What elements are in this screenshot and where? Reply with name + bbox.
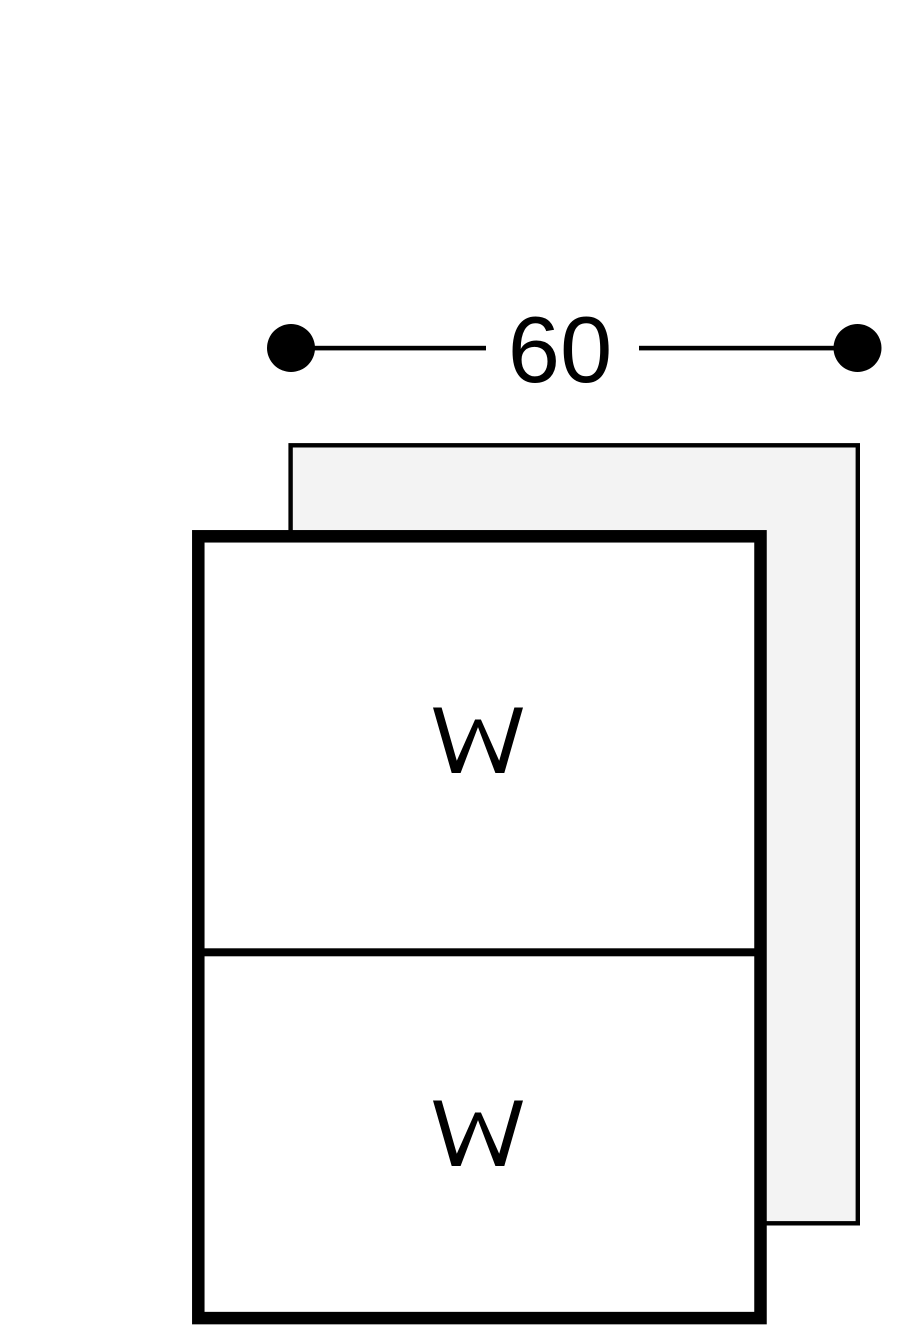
svg-text:60: 60 [508,297,613,402]
